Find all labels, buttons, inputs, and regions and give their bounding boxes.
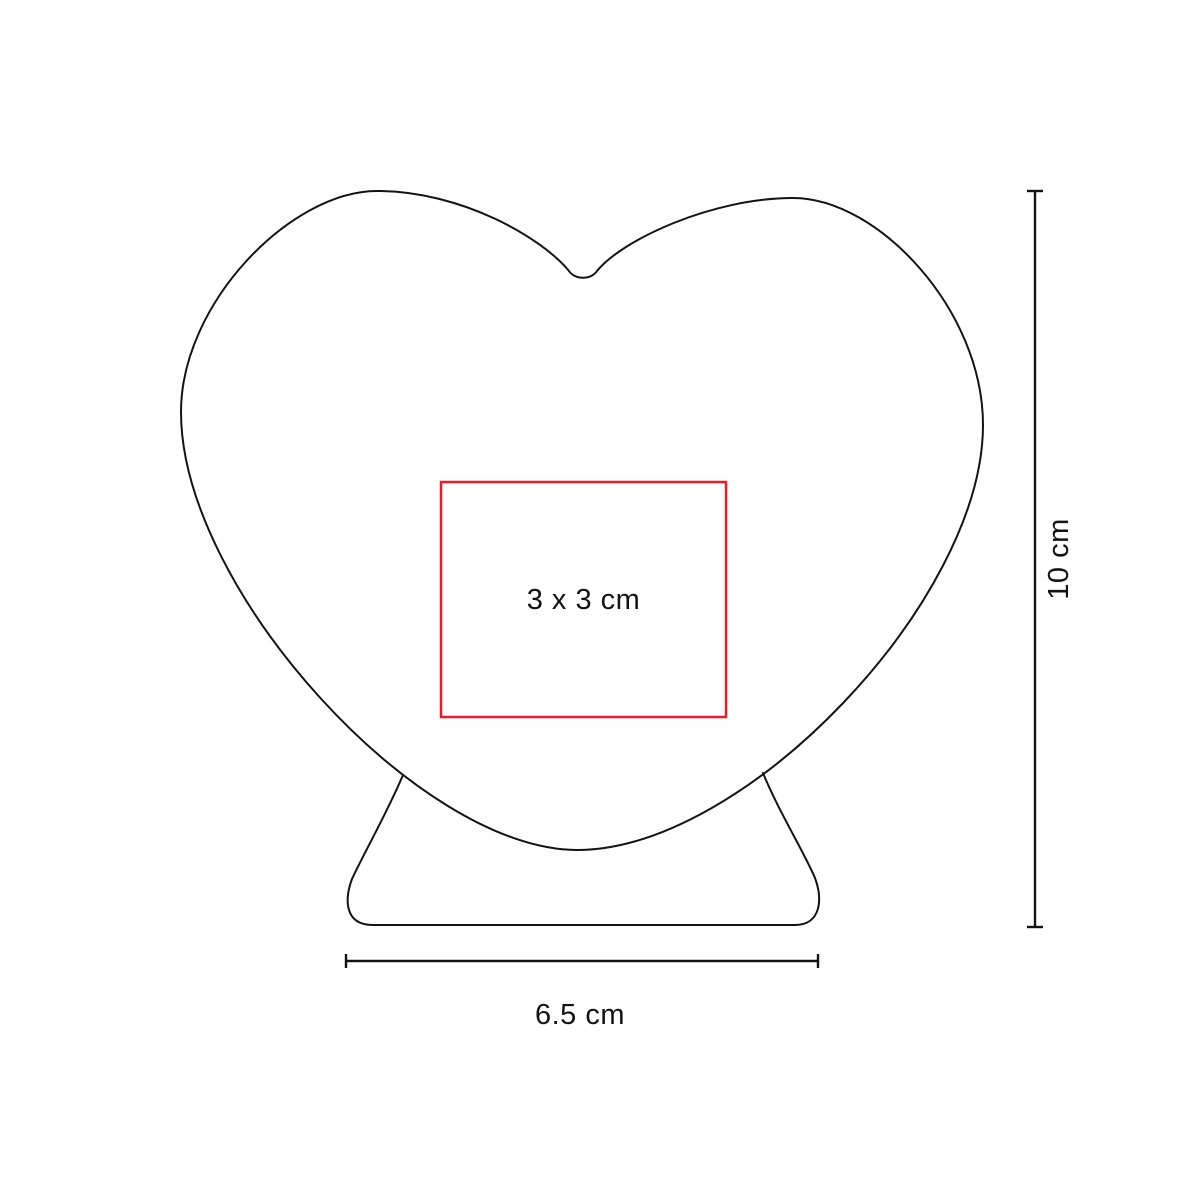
width-dimension-label: 6.5 cm [510,998,650,1032]
print-area-label: 3 x 3 cm [441,482,726,717]
product-dimension-diagram: 3 x 3 cm 10 cm 6.5 cm [0,0,1200,1200]
width-dimension-line [346,954,818,968]
height-dimension-line [1027,191,1043,927]
height-dimension-label: 10 cm [1042,489,1076,629]
